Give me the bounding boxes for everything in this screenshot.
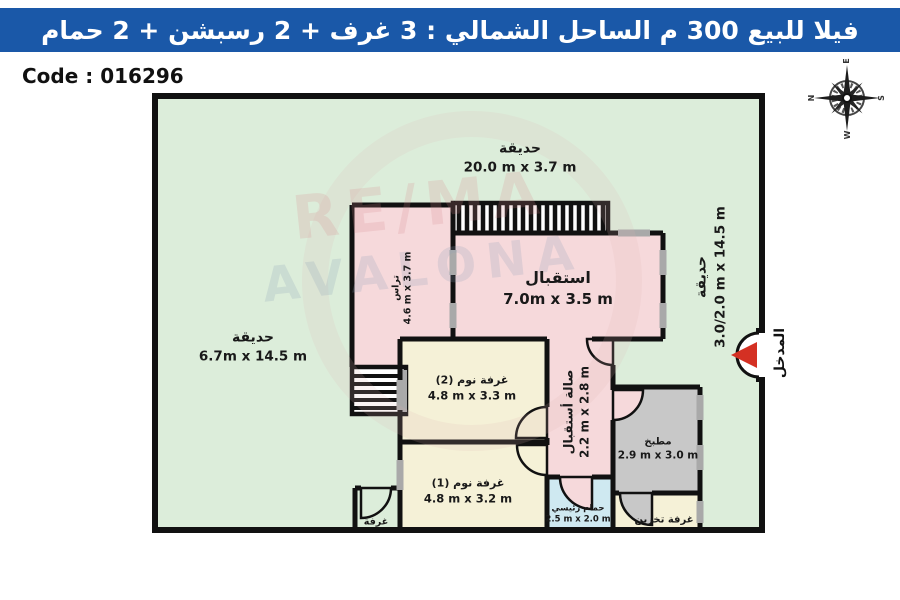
floor-plan: RE/MA AVALONA حديقة 20.0 m x 3.7 m حديقة… (152, 93, 765, 533)
garden-right-label: حديقة 3.0/2.0 m x 14.5 m (694, 206, 729, 348)
terrace-dims: 4.6 m x 3.7 m (403, 252, 414, 325)
compass-north-label: N (808, 95, 816, 102)
bedroom2-dims: 4.8 m x 3.3 m (428, 389, 516, 403)
garden-top-label: حديقة 20.0 m x 3.7 m (464, 141, 577, 176)
kitchen-name: مطبخ (618, 437, 698, 448)
bedroom2-name: غرفة نوم (2) (428, 374, 516, 387)
reception-dims: 7.0m x 3.5 m (503, 290, 613, 308)
garden-left-dims: 6.7m x 14.5 m (199, 349, 307, 365)
garden-right-dims: 3.0/2.0 m x 14.5 m (713, 206, 729, 348)
storage-label: غرفة تخزين (634, 515, 693, 528)
garden-top-name: حديقة (464, 141, 577, 157)
top-stairs (453, 203, 608, 233)
compass-east-label: E (842, 58, 851, 63)
terrace-name: تراس (391, 252, 402, 325)
garden-top-dims: 20.0 m x 3.7 m (464, 160, 577, 176)
hall-dims: 2.2 m x 2.8 m (578, 366, 592, 458)
floorplan-page: فيلا للبيع 300 م الساحل الشمالي : 3 غرف … (0, 0, 900, 600)
reception-label: استقبال 7.0m x 3.5 m (503, 268, 613, 308)
bedroom1-dims: 4.8 m x 3.2 m (424, 492, 512, 506)
bathroom-dims: 2.5 m x 2.0 m (545, 515, 610, 525)
small-room-name: غرفة (364, 517, 388, 528)
hall-name: صالة أستقبال (561, 366, 576, 458)
code-label: Code : 016296 (22, 64, 184, 88)
entrance-label: المدخل (772, 328, 788, 378)
bedroom2-label: غرفة نوم (2) 4.8 m x 3.3 m (428, 374, 516, 403)
kitchen-label: مطبخ 2.9 m x 3.0 m (618, 437, 698, 462)
storage-name: غرفة تخزين (634, 515, 693, 526)
garden-right-name: حديقة (694, 206, 710, 348)
floor-plan-canvas (152, 93, 765, 533)
kitchen-dims: 2.9 m x 3.0 m (618, 450, 698, 462)
reception-name: استقبال (503, 268, 613, 287)
bedroom1-name: غرفة نوم (1) (424, 477, 512, 490)
banner-title: فيلا للبيع 300 م الساحل الشمالي : 3 غرف … (41, 16, 859, 45)
small-room-label: غرفة (364, 517, 388, 528)
title-banner: فيلا للبيع 300 م الساحل الشمالي : 3 غرف … (0, 8, 900, 52)
compass-south-label: S (877, 95, 886, 101)
bathroom-name: حمام رئيسي (545, 504, 610, 514)
compass-rose-icon: E S W N (808, 56, 886, 140)
hall-label: صالة أستقبال 2.2 m x 2.8 m (561, 366, 592, 458)
compass-west-label: W (843, 130, 852, 139)
bedroom1-label: غرفة نوم (1) 4.8 m x 3.2 m (424, 477, 512, 506)
garden-left-name: حديقة (199, 330, 307, 346)
terrace-label: تراس 4.6 m x 3.7 m (391, 252, 414, 325)
garden-left-label: حديقة 6.7m x 14.5 m (199, 330, 307, 365)
bathroom-label: حمام رئيسي 2.5 m x 2.0 m (545, 504, 610, 525)
